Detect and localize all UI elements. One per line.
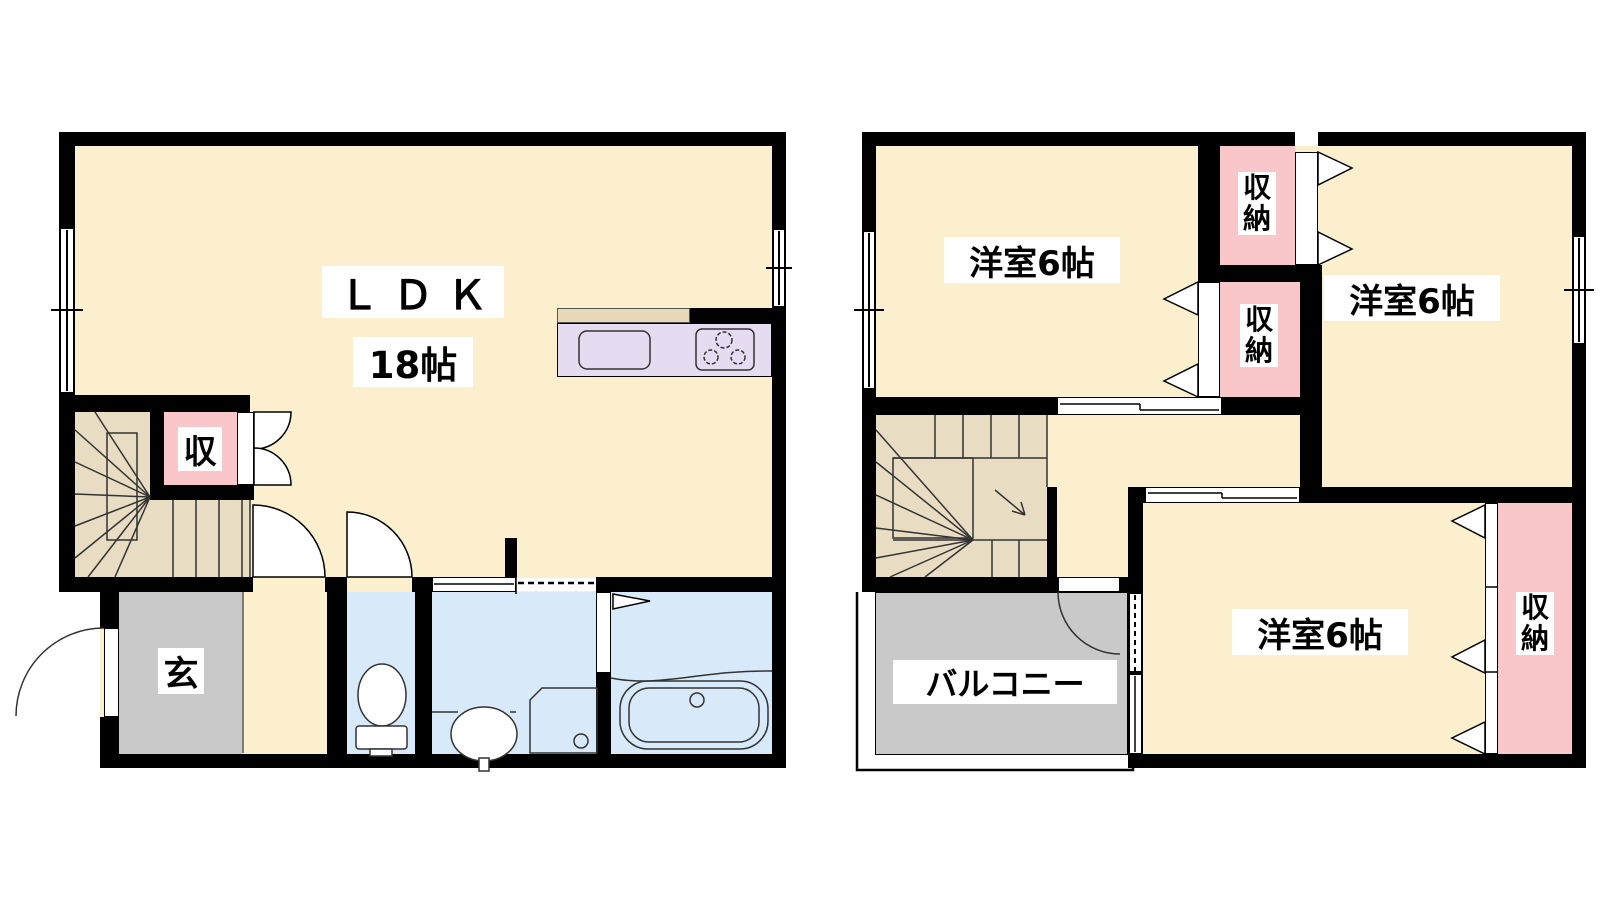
balcony-door-arc — [1058, 592, 1120, 654]
kitchen-sink-icon — [579, 331, 650, 369]
front-door-arc — [16, 628, 104, 716]
toilet-icon — [356, 664, 407, 756]
window-ticks-2f — [854, 233, 1594, 387]
stairs-2f — [876, 415, 1047, 577]
window-ticks-1f — [51, 230, 792, 391]
closet-folding-door-triangles — [1164, 152, 1485, 754]
floorplan-canvas: ＬＤＫ 18帖 収 玄 — [0, 0, 1600, 900]
stairs-1f — [75, 412, 250, 577]
sliding-door-lines-1f — [434, 575, 594, 594]
double-door-icon — [254, 412, 291, 485]
plan-linework — [0, 0, 1600, 900]
bath-door-flag-icon — [613, 594, 650, 609]
hinged-door-icon — [253, 505, 412, 577]
stove-icon — [696, 329, 754, 370]
balcony-fence — [857, 592, 1133, 770]
bathtub-icon — [611, 671, 772, 749]
sliding-door-lines-2f — [1060, 404, 1297, 498]
washing-machine-pan-icon — [530, 688, 597, 753]
closet-east-door-dividers — [1485, 587, 1498, 672]
vanity-sink-icon — [432, 707, 517, 771]
